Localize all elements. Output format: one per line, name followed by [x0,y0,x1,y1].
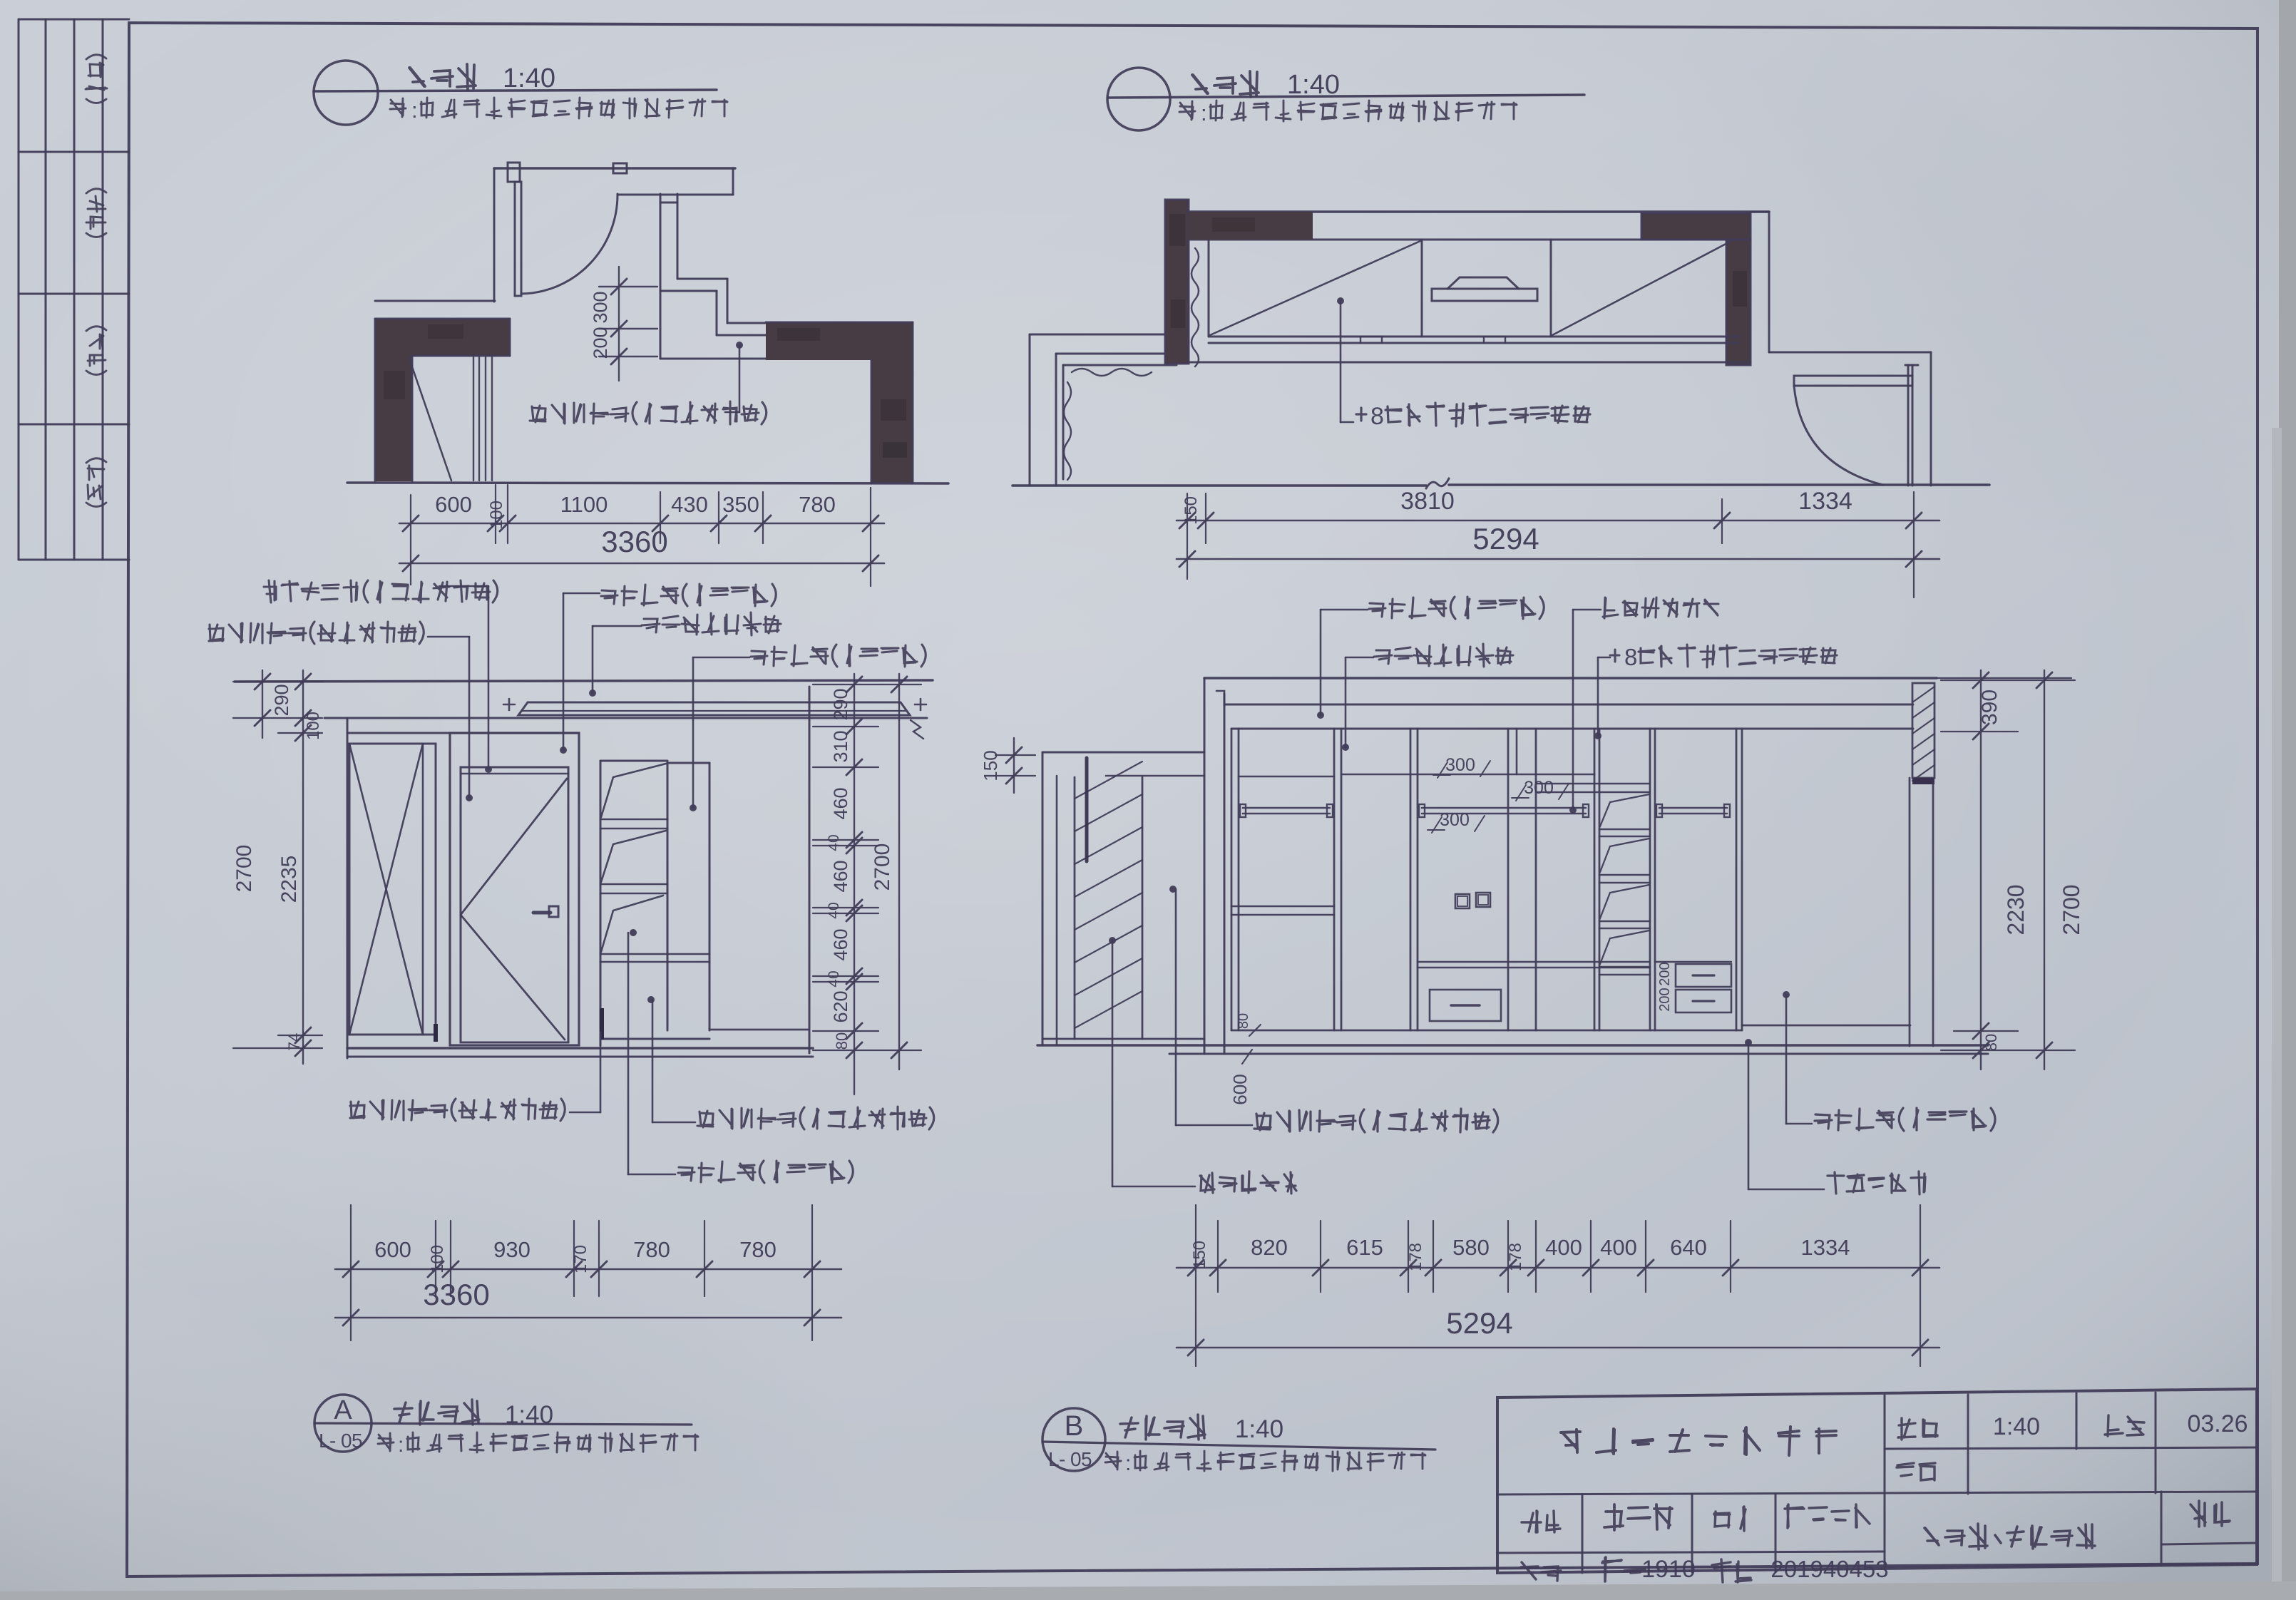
svg-text:1:40: 1:40 [1235,1415,1283,1443]
svg-text:8: 8 [1624,644,1637,670]
svg-text:100: 100 [487,501,506,529]
svg-text:1910: 1910 [1641,1556,1696,1583]
svg-text:03.26: 03.26 [2187,1410,2248,1437]
svg-text:-: - [329,1430,336,1452]
svg-text:80: 80 [833,1032,851,1050]
svg-text:80: 80 [1236,1013,1251,1029]
svg-text:100: 100 [304,712,323,740]
svg-text:200: 200 [1657,988,1673,1011]
svg-text:300: 300 [1440,810,1470,830]
svg-text:200: 200 [590,327,611,359]
svg-text:A: A [334,1395,352,1425]
svg-text:5: 5 [352,1430,363,1452]
svg-text:1100: 1100 [560,492,608,517]
svg-text:3810: 3810 [1400,488,1455,515]
svg-text:310: 310 [830,730,851,762]
svg-text:600: 600 [374,1237,411,1262]
svg-text:600: 600 [435,492,472,517]
svg-text:460: 460 [830,860,851,892]
svg-text:178: 178 [1506,1243,1525,1271]
svg-text:640: 640 [1670,1235,1707,1260]
svg-text:2235: 2235 [277,856,301,903]
svg-text:580: 580 [1452,1235,1490,1260]
svg-text:L: L [319,1430,330,1452]
svg-text:460: 460 [830,787,851,819]
svg-text:74: 74 [285,1033,303,1050]
svg-text:390: 390 [1978,689,2002,725]
svg-text:600: 600 [1229,1074,1251,1104]
svg-text:150: 150 [1190,1241,1209,1269]
svg-text:40: 40 [826,902,842,918]
svg-text:5: 5 [1081,1448,1092,1470]
svg-text:40: 40 [826,970,842,987]
svg-text:100: 100 [428,1245,447,1273]
svg-text:290: 290 [830,688,851,720]
svg-text::: : [1201,101,1207,125]
svg-text:L: L [1048,1448,1060,1470]
svg-text:780: 780 [739,1237,777,1262]
svg-text:620: 620 [830,990,851,1022]
svg-text:1:40: 1:40 [1287,70,1340,100]
svg-text:2700: 2700 [2059,884,2084,935]
svg-text:0: 0 [1070,1448,1082,1470]
svg-text::: : [398,1433,404,1457]
svg-text:3360: 3360 [423,1278,489,1311]
svg-text:1:40: 1:40 [505,1401,553,1429]
svg-text:1334: 1334 [1798,488,1852,515]
svg-text:300: 300 [1524,778,1554,798]
svg-text::: : [411,98,418,123]
svg-text:615: 615 [1346,1235,1383,1260]
svg-text:178: 178 [1406,1243,1425,1271]
svg-text:40: 40 [826,834,842,851]
svg-text:170: 170 [571,1245,590,1273]
svg-text:1:40: 1:40 [503,63,555,93]
svg-text:1334: 1334 [1801,1235,1850,1260]
svg-text:5294: 5294 [1446,1306,1512,1340]
svg-text:-: - [1059,1448,1065,1470]
svg-text:B: B [1065,1410,1084,1442]
svg-text:300: 300 [590,291,611,323]
svg-text:820: 820 [1251,1235,1288,1260]
svg-text:80: 80 [1982,1034,2000,1051]
svg-text:350: 350 [722,492,759,517]
svg-text:780: 780 [633,1237,670,1262]
svg-text:460: 460 [830,928,851,960]
svg-text:8: 8 [1370,403,1384,430]
svg-text:200: 200 [1657,962,1673,985]
svg-text:780: 780 [799,492,836,517]
svg-text:930: 930 [493,1237,531,1262]
svg-text:0: 0 [341,1430,352,1452]
svg-text:400: 400 [1600,1235,1637,1260]
svg-text:2700: 2700 [232,845,256,893]
svg-text:150: 150 [1182,496,1201,525]
svg-text:3360: 3360 [601,525,667,558]
svg-text::: : [1125,1452,1131,1475]
svg-text:1:40: 1:40 [1993,1413,2040,1440]
svg-text:430: 430 [671,492,708,517]
svg-text:300: 300 [1445,755,1475,775]
svg-text:2700: 2700 [871,843,894,891]
svg-text:400: 400 [1545,1235,1582,1260]
svg-text:5294: 5294 [1472,522,1539,555]
svg-text:201940453: 201940453 [1770,1556,1888,1582]
svg-text:150: 150 [980,750,1001,781]
svg-text:290: 290 [271,684,292,716]
svg-text:2230: 2230 [2003,884,2029,935]
